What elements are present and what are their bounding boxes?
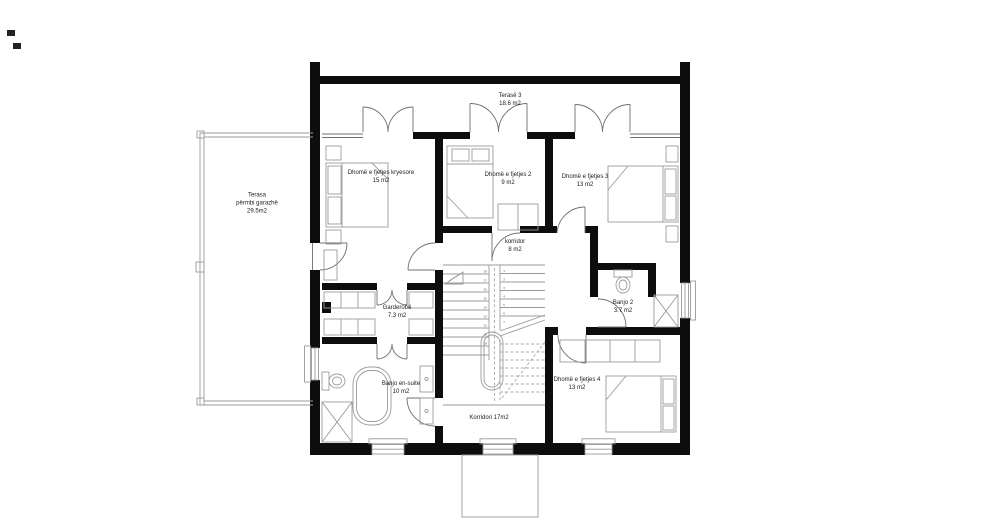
svg-text:17: 17: [483, 279, 487, 283]
room-area: 10 m2: [382, 389, 420, 397]
room-name: Dhomë e fjetjes 3: [562, 174, 609, 182]
stair-numbers-left: 181716151413121110: [483, 270, 487, 346]
door-icon: [558, 335, 586, 363]
room-label-terasa3: Terasë 3 18.6 m2: [498, 93, 521, 109]
porch-outline: [462, 455, 538, 517]
svg-text:10: 10: [483, 342, 487, 346]
svg-text:18: 18: [483, 270, 487, 274]
svg-text:7: 7: [503, 320, 505, 324]
svg-text:13: 13: [483, 315, 487, 319]
svg-text:12: 12: [483, 324, 487, 328]
svg-text:11: 11: [483, 333, 487, 337]
sink-icon: [420, 366, 433, 392]
sink-icon: [420, 398, 433, 424]
room-area: 9 m2: [485, 180, 532, 188]
svg-text:14: 14: [483, 306, 487, 310]
room-name-2: përmbi garazhë: [236, 200, 278, 208]
room-name: Dhomë e fjetjes 4: [554, 377, 601, 385]
room-label-korridor: korridor 8 m2: [505, 239, 525, 255]
closet-icon-garderobe: [324, 292, 433, 335]
double-door-icon: [377, 344, 407, 359]
room-name: Terasa: [236, 192, 278, 200]
room-label-korridori: Korridori 17m2: [469, 415, 508, 423]
stair-treads-dashed: [500, 340, 545, 402]
bed-icon-bedroom4: [606, 376, 676, 432]
shower-icon: [322, 402, 352, 442]
room-name: Banjo 2: [613, 300, 633, 308]
room-label-master: Dhomë e fjetjes kryesore 15 m2: [348, 170, 414, 186]
room-area: 7.3 m2: [383, 313, 412, 321]
svg-text:1: 1: [503, 269, 505, 273]
room-name: Terasë 3: [498, 93, 521, 101]
room-name: Korridori 17m2: [469, 415, 508, 423]
toilet-icon: [322, 372, 345, 390]
room-area: 29.5m2: [236, 208, 278, 216]
room-label-terasa-garazhe: Terasa përmbi garazhë 29.5m2: [236, 192, 278, 215]
window-icon: [682, 281, 696, 320]
window-icon: [480, 439, 516, 454]
french-door-icon: [575, 105, 630, 133]
bed-icon-master: [324, 146, 388, 280]
room-area: 18.6 m2: [498, 101, 521, 109]
staircase: 181716151413121110 1234567: [443, 265, 545, 405]
stair-treads-left: [443, 265, 489, 360]
window-icon: [582, 439, 615, 454]
french-door-icon: [363, 107, 413, 132]
room-label-banjo2: Banjo 2 3.7 m2: [613, 300, 633, 316]
room-name: Dhomë e fjetjes 2: [485, 172, 532, 180]
room-label-garderobe: Garderobë 7.3 m2: [383, 305, 412, 321]
svg-text:16: 16: [483, 288, 487, 292]
svg-text:3: 3: [503, 286, 505, 290]
glazed-walls: [322, 134, 680, 138]
toilet-icon: [614, 270, 632, 293]
room-area: 8 m2: [505, 247, 525, 255]
svg-text:15: 15: [483, 297, 487, 301]
room-area: 13 m2: [554, 385, 601, 393]
floor-plan-drawing: 181716151413121110 1234567: [0, 0, 990, 532]
svg-text:5: 5: [503, 303, 505, 307]
room-name: Garderobë: [383, 305, 412, 313]
room-area: 15 m2: [348, 178, 414, 186]
floor-plan-page: 181716151413121110 1234567: [0, 0, 990, 532]
svg-text:2: 2: [503, 278, 505, 282]
double-door-icon: [377, 290, 407, 305]
room-area: 13 m2: [562, 182, 609, 190]
bed-icon-bedroom3: [608, 146, 678, 242]
door-icon: [313, 243, 348, 270]
room-area: 3.7 m2: [613, 308, 633, 316]
terrace-left-railing: [196, 131, 313, 405]
stair-treads-right: [500, 265, 545, 330]
room-name: Banjo en-suite: [382, 381, 420, 389]
room-name: korridor: [505, 239, 525, 247]
room-label-bedroom2: Dhomë e fjetjes 2 9 m2: [485, 172, 532, 188]
door-icon: [557, 207, 585, 233]
window-icon: [369, 439, 407, 454]
room-label-bedroom4: Dhomë e fjetjes 4 13 m2: [554, 377, 601, 393]
shower-icon: [654, 295, 678, 327]
svg-text:6: 6: [503, 312, 505, 316]
svg-text:4: 4: [503, 295, 505, 299]
exterior-walls: [310, 62, 690, 455]
window-icon: [305, 346, 319, 382]
room-label-banjo-ensuite: Banjo en-suite 10 m2: [382, 381, 420, 397]
door-icon: [407, 398, 435, 426]
room-name: Dhomë e fjetjes kryesore: [348, 170, 414, 178]
door-icon: [408, 243, 435, 270]
room-label-bedroom3: Dhomë e fjetjes 3 13 m2: [562, 174, 609, 190]
closet-icon-bedroom4: [560, 340, 660, 362]
plan-corner-marks: [7, 30, 21, 49]
